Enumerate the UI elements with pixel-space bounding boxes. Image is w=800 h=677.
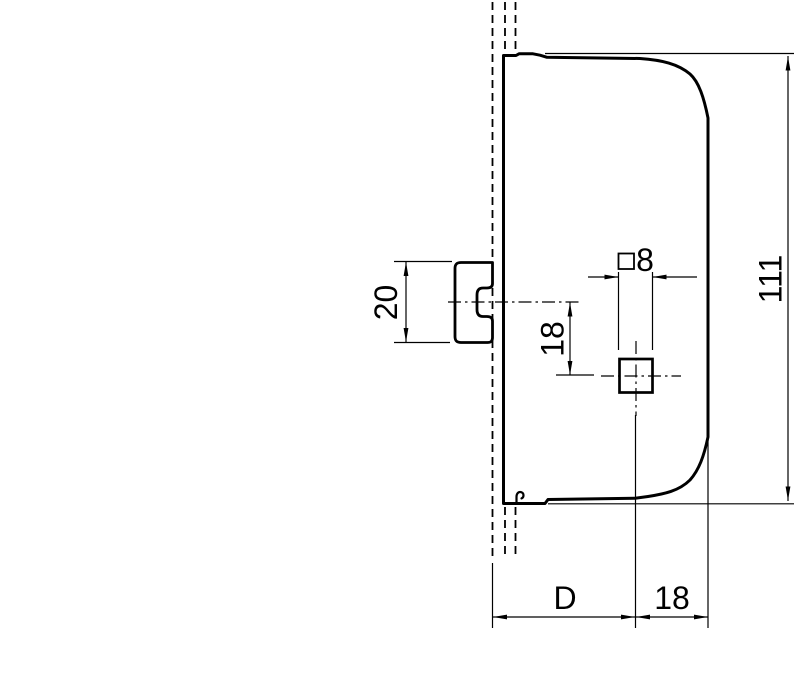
arrow-knob-top [404,262,409,276]
technical-drawing-canvas: 20 18 8 111 D 18 [0,0,800,677]
arrow-knob-bottom [404,328,409,342]
dim-text-spindle-to-back: 18 [654,580,690,616]
arrow-backset-left [493,615,507,620]
dim-text-square-size: 8 [636,242,654,278]
arrow-backset-right [621,615,635,620]
arrow-back18-right [694,615,708,620]
arrow-back18-left [636,615,650,620]
dim-text-knob-diameter: 20 [368,285,404,321]
dim-text-case-height: 111 [753,255,789,304]
lock-side-view-drawing: 20 18 8 111 D 18 [0,0,800,677]
dim-text-backset: D [553,580,576,616]
arrow-height-top [786,57,791,71]
arrow-height-bottom [786,487,791,501]
dim-text-spindle-offset: 18 [535,321,571,357]
